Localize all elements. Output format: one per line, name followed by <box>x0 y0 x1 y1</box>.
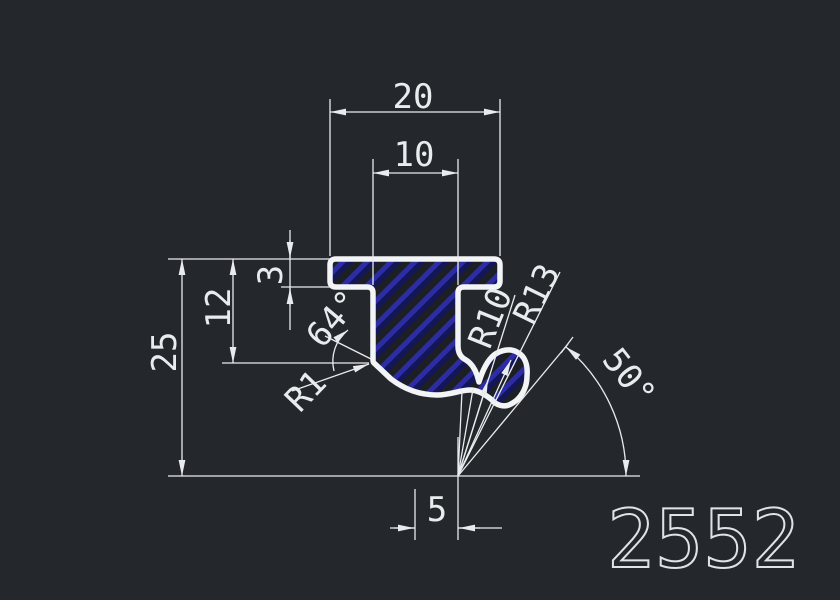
part-number: 2552 <box>607 493 800 586</box>
cad-canvas: 20 10 3 12 25 5 64° 50° R1 R10 R13 2552 <box>0 0 840 600</box>
dim-top-width-label: 20 <box>393 77 434 117</box>
cad-drawing: 20 10 3 12 25 5 64° 50° R1 R10 R13 2552 <box>0 0 840 600</box>
dim-inner-height-label: 12 <box>199 288 239 329</box>
dim-bottom-offset-label: 5 <box>427 490 447 530</box>
dim-flange-thickness-label: 3 <box>251 265 291 285</box>
dim-stem-width-label: 10 <box>394 135 435 175</box>
dim-total-height-label: 25 <box>145 332 185 373</box>
